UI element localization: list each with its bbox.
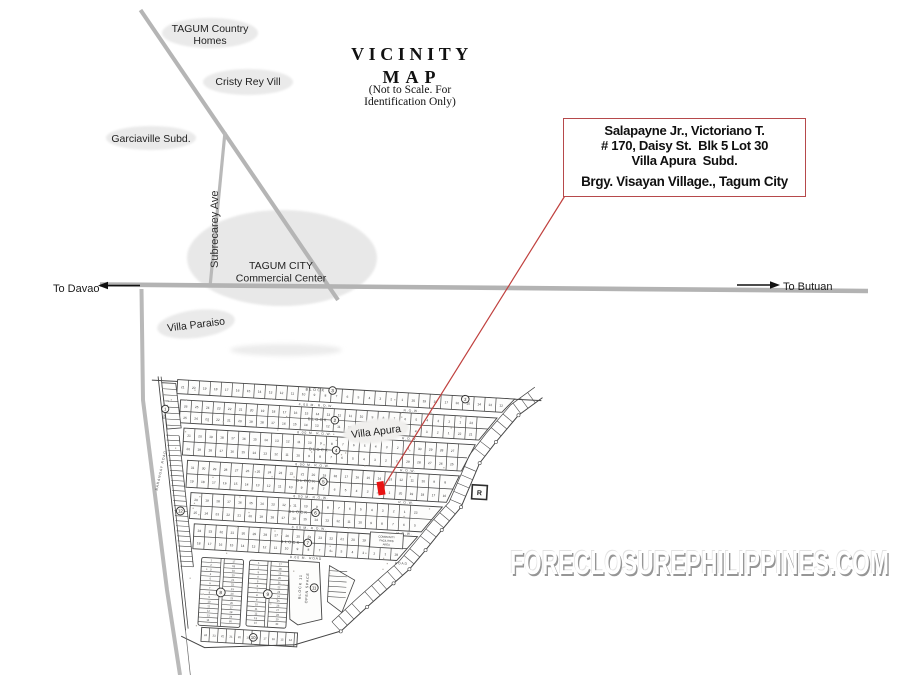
svg-text:13: 13 bbox=[488, 403, 492, 407]
svg-text:14: 14 bbox=[377, 477, 381, 481]
svg-text:15: 15 bbox=[230, 543, 234, 547]
svg-text:22: 22 bbox=[458, 432, 462, 436]
svg-text:18: 18 bbox=[272, 409, 276, 413]
svg-text:24: 24 bbox=[206, 406, 210, 410]
svg-text:18: 18 bbox=[216, 499, 220, 503]
svg-text:15: 15 bbox=[247, 389, 251, 393]
svg-text:12: 12 bbox=[286, 439, 290, 443]
svg-text:11: 11 bbox=[285, 453, 289, 457]
svg-text:11: 11 bbox=[291, 392, 295, 396]
svg-text:25: 25 bbox=[257, 470, 261, 474]
svg-text:19: 19 bbox=[410, 492, 414, 496]
svg-text:21: 21 bbox=[340, 537, 344, 541]
svg-text:14: 14 bbox=[252, 451, 256, 455]
svg-text:13: 13 bbox=[271, 502, 275, 506]
svg-text:12: 12 bbox=[263, 545, 267, 549]
svg-text:20: 20 bbox=[198, 434, 202, 438]
svg-text:15: 15 bbox=[249, 501, 253, 505]
svg-text:30: 30 bbox=[202, 466, 206, 470]
svg-text:14: 14 bbox=[260, 502, 264, 506]
svg-text:28: 28 bbox=[224, 468, 228, 472]
svg-text:24: 24 bbox=[268, 470, 272, 474]
svg-text:19: 19 bbox=[422, 399, 426, 403]
svg-text:17: 17 bbox=[208, 542, 212, 546]
svg-text:21: 21 bbox=[239, 408, 243, 412]
svg-text:12: 12 bbox=[267, 484, 271, 488]
svg-text:29: 29 bbox=[252, 532, 256, 536]
svg-text:29: 29 bbox=[406, 460, 410, 464]
svg-text:To Davao: To Davao bbox=[53, 283, 99, 295]
svg-text:12: 12 bbox=[336, 519, 340, 523]
svg-text:20: 20 bbox=[312, 473, 316, 477]
svg-text:25: 25 bbox=[193, 511, 197, 515]
svg-text:14: 14 bbox=[477, 402, 481, 406]
svg-text:To Butuan: To Butuan bbox=[783, 281, 833, 293]
svg-text:12: 12 bbox=[282, 503, 286, 507]
svg-text:18: 18 bbox=[197, 541, 201, 545]
svg-text:Homes: Homes bbox=[193, 35, 226, 47]
svg-text:20: 20 bbox=[351, 538, 355, 542]
svg-text:15: 15 bbox=[366, 476, 370, 480]
svg-text:11: 11 bbox=[293, 504, 297, 508]
svg-text:TAGUM Country: TAGUM Country bbox=[172, 23, 250, 35]
svg-text:15: 15 bbox=[293, 422, 297, 426]
svg-text:13: 13 bbox=[275, 439, 279, 443]
svg-text:23: 23 bbox=[279, 471, 283, 475]
svg-text:19: 19 bbox=[259, 515, 263, 519]
svg-text:11: 11 bbox=[337, 425, 341, 429]
svg-text:20: 20 bbox=[186, 447, 190, 451]
svg-text:17: 17 bbox=[225, 388, 229, 392]
svg-text:26: 26 bbox=[184, 404, 188, 408]
svg-text:11: 11 bbox=[410, 478, 414, 482]
svg-text:17: 17 bbox=[219, 449, 223, 453]
svg-text:28: 28 bbox=[263, 533, 267, 537]
svg-text:17: 17 bbox=[444, 400, 448, 404]
svg-text:Cristy Rey Vill: Cristy Rey Vill bbox=[215, 76, 280, 88]
svg-text:27: 27 bbox=[451, 449, 455, 453]
svg-text:12: 12 bbox=[338, 413, 342, 417]
svg-text:30: 30 bbox=[418, 447, 422, 451]
svg-text:27: 27 bbox=[235, 468, 239, 472]
svg-text:17: 17 bbox=[271, 421, 275, 425]
svg-text:R: R bbox=[477, 490, 482, 497]
svg-text:16: 16 bbox=[242, 437, 246, 441]
svg-text:28: 28 bbox=[440, 448, 444, 452]
svg-text:16: 16 bbox=[455, 401, 459, 405]
svg-text:14: 14 bbox=[241, 544, 245, 548]
svg-text:19: 19 bbox=[249, 420, 253, 424]
svg-text:10: 10 bbox=[304, 504, 308, 508]
svg-text:15: 15 bbox=[253, 437, 257, 441]
svg-text:26: 26 bbox=[285, 534, 289, 538]
svg-text:12: 12 bbox=[399, 478, 403, 482]
svg-text:15: 15 bbox=[241, 450, 245, 454]
svg-text:13: 13 bbox=[263, 451, 267, 455]
svg-text:23: 23 bbox=[469, 421, 473, 425]
svg-text:21: 21 bbox=[237, 513, 241, 517]
svg-text:23: 23 bbox=[414, 511, 418, 515]
svg-text:11: 11 bbox=[297, 440, 301, 444]
svg-text:10: 10 bbox=[285, 546, 289, 550]
svg-text:10: 10 bbox=[421, 479, 425, 483]
svg-text:31: 31 bbox=[230, 531, 234, 535]
svg-text:16: 16 bbox=[219, 543, 223, 547]
svg-text:25: 25 bbox=[296, 534, 300, 538]
svg-text:16: 16 bbox=[292, 517, 296, 521]
svg-text:18: 18 bbox=[214, 387, 218, 391]
svg-text:27: 27 bbox=[428, 461, 432, 465]
svg-text:33: 33 bbox=[208, 529, 212, 533]
svg-text:AREA: AREA bbox=[383, 542, 391, 546]
svg-text:22: 22 bbox=[290, 472, 294, 476]
svg-text:13: 13 bbox=[256, 483, 260, 487]
svg-text:20: 20 bbox=[250, 408, 254, 412]
svg-text:15: 15 bbox=[305, 411, 309, 415]
svg-text:32: 32 bbox=[219, 530, 223, 534]
svg-text:20: 20 bbox=[238, 419, 242, 423]
svg-text:19: 19 bbox=[322, 473, 326, 477]
svg-text:25: 25 bbox=[450, 462, 454, 466]
svg-text:19: 19 bbox=[203, 386, 207, 390]
svg-text:21: 21 bbox=[187, 434, 191, 438]
svg-text:Commercial Center: Commercial Center bbox=[236, 273, 327, 285]
svg-text:13: 13 bbox=[252, 544, 256, 548]
svg-text:20: 20 bbox=[194, 498, 198, 502]
svg-text:12: 12 bbox=[499, 404, 503, 408]
svg-text:34: 34 bbox=[197, 529, 201, 533]
svg-text:18: 18 bbox=[260, 420, 264, 424]
svg-text:29: 29 bbox=[429, 448, 433, 452]
svg-text:16: 16 bbox=[223, 481, 227, 485]
svg-text:14: 14 bbox=[258, 390, 262, 394]
svg-text:Garciaville Subd.: Garciaville Subd. bbox=[111, 133, 190, 145]
svg-text:21: 21 bbox=[181, 385, 185, 389]
svg-text:19: 19 bbox=[209, 435, 213, 439]
svg-text:15: 15 bbox=[303, 517, 307, 521]
svg-text:27: 27 bbox=[274, 533, 278, 537]
svg-text:16: 16 bbox=[443, 494, 447, 498]
svg-text:28: 28 bbox=[417, 460, 421, 464]
svg-text:31: 31 bbox=[191, 466, 195, 470]
svg-text:11: 11 bbox=[347, 520, 351, 524]
svg-text:23: 23 bbox=[215, 512, 219, 516]
svg-text:10: 10 bbox=[358, 520, 362, 524]
svg-text:13: 13 bbox=[327, 413, 331, 417]
svg-text:13: 13 bbox=[269, 390, 273, 394]
svg-text:17: 17 bbox=[281, 516, 285, 520]
svg-text:22: 22 bbox=[329, 536, 333, 540]
svg-text:14: 14 bbox=[264, 438, 268, 442]
svg-text:17: 17 bbox=[283, 410, 287, 414]
svg-text:17: 17 bbox=[231, 436, 235, 440]
svg-text:20: 20 bbox=[411, 398, 415, 402]
svg-text:18: 18 bbox=[220, 436, 224, 440]
svg-text:25: 25 bbox=[183, 416, 187, 420]
svg-text:19: 19 bbox=[362, 538, 366, 542]
svg-text:14: 14 bbox=[245, 482, 249, 486]
svg-text:24: 24 bbox=[194, 417, 198, 421]
svg-text:17: 17 bbox=[432, 493, 436, 497]
svg-text:25: 25 bbox=[195, 405, 199, 409]
svg-text:12: 12 bbox=[178, 508, 184, 513]
svg-text:12: 12 bbox=[274, 452, 278, 456]
svg-text:11: 11 bbox=[349, 414, 353, 418]
svg-text:14: 14 bbox=[304, 423, 308, 427]
svg-text:10: 10 bbox=[308, 441, 312, 445]
svg-text:21: 21 bbox=[301, 472, 305, 476]
svg-text:24: 24 bbox=[204, 511, 208, 515]
svg-text:13: 13 bbox=[315, 423, 319, 427]
svg-text:26: 26 bbox=[439, 462, 443, 466]
svg-text:16: 16 bbox=[294, 411, 298, 415]
svg-text:12: 12 bbox=[280, 391, 284, 395]
svg-text:16: 16 bbox=[236, 388, 240, 392]
svg-text:BARANGAY ROAD: BARANGAY ROAD bbox=[155, 450, 168, 491]
svg-text:14: 14 bbox=[314, 518, 318, 522]
svg-text:16: 16 bbox=[355, 475, 359, 479]
svg-text:10: 10 bbox=[289, 485, 293, 489]
svg-text:26: 26 bbox=[246, 469, 250, 473]
svg-text:19: 19 bbox=[261, 409, 265, 413]
svg-text:17: 17 bbox=[344, 475, 348, 479]
svg-text:16: 16 bbox=[238, 500, 242, 504]
svg-text:21: 21 bbox=[227, 418, 231, 422]
svg-text:23: 23 bbox=[217, 406, 221, 410]
svg-text:10: 10 bbox=[296, 453, 300, 457]
svg-text:23: 23 bbox=[318, 536, 322, 540]
svg-text:Subrecarey Ave: Subrecarey Ave bbox=[209, 191, 221, 268]
svg-text:13: 13 bbox=[325, 518, 329, 522]
svg-text:22: 22 bbox=[228, 407, 232, 411]
svg-text:17: 17 bbox=[212, 481, 216, 485]
svg-text:16: 16 bbox=[282, 422, 286, 426]
svg-text:21: 21 bbox=[469, 432, 473, 436]
svg-text:11: 11 bbox=[278, 484, 282, 488]
svg-text:15: 15 bbox=[234, 482, 238, 486]
svg-text:20: 20 bbox=[248, 514, 252, 518]
svg-text:18: 18 bbox=[270, 515, 274, 519]
svg-text:19: 19 bbox=[190, 479, 194, 483]
svg-text:30: 30 bbox=[241, 531, 245, 535]
svg-text:10: 10 bbox=[302, 392, 306, 396]
svg-text:19: 19 bbox=[197, 448, 201, 452]
svg-text:FACILITIES: FACILITIES bbox=[379, 538, 394, 543]
svg-text:20: 20 bbox=[192, 386, 196, 390]
svg-text:17: 17 bbox=[227, 500, 231, 504]
svg-text:18: 18 bbox=[208, 448, 212, 452]
svg-text:18: 18 bbox=[201, 480, 205, 484]
svg-text:20: 20 bbox=[399, 491, 403, 495]
svg-text:28: 28 bbox=[394, 553, 398, 557]
svg-text:18: 18 bbox=[333, 474, 337, 478]
svg-text:29: 29 bbox=[213, 467, 217, 471]
svg-text:12: 12 bbox=[326, 424, 330, 428]
svg-text:14: 14 bbox=[316, 412, 320, 416]
svg-text:22: 22 bbox=[226, 513, 230, 517]
svg-text:22: 22 bbox=[216, 418, 220, 422]
svg-text:8.00 M. ROAD: 8.00 M. ROAD bbox=[290, 555, 322, 561]
svg-text:16: 16 bbox=[230, 450, 234, 454]
svg-text:10: 10 bbox=[360, 415, 364, 419]
svg-text:18: 18 bbox=[421, 493, 425, 497]
svg-text:19: 19 bbox=[205, 498, 209, 502]
svg-text:11: 11 bbox=[274, 546, 278, 550]
svg-text:TAGUM CITY: TAGUM CITY bbox=[249, 260, 313, 272]
